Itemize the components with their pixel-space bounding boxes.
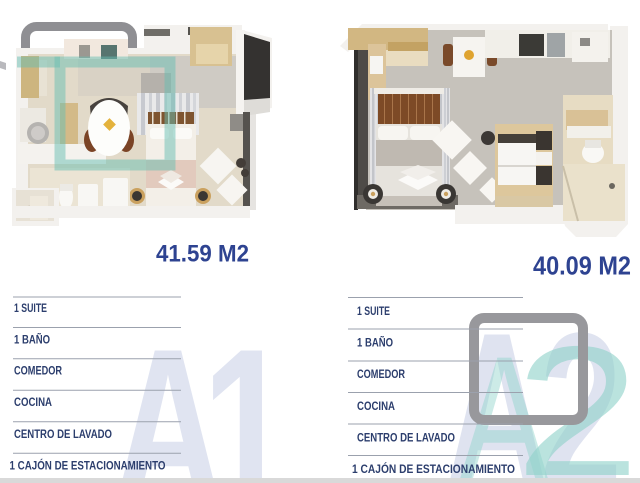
svg-text:1 SUITE: 1 SUITE <box>14 301 47 315</box>
svg-text:1 CAJÓN DE ESTACIONAMIENTO: 1 CAJÓN DE ESTACIONAMIENTO <box>10 458 166 473</box>
svg-text:COCINA: COCINA <box>14 395 52 409</box>
svg-text:1 BAÑO: 1 BAÑO <box>14 331 50 346</box>
svg-text:1 SUITE: 1 SUITE <box>357 304 390 318</box>
svg-text:CENTRO DE LAVADO: CENTRO DE LAVADO <box>357 430 455 444</box>
svg-text:1 CAJÓN DE ESTACIONAMIENTO: 1 CAJÓN DE ESTACIONAMIENTO <box>352 461 515 476</box>
svg-text:COMEDOR: COMEDOR <box>14 364 62 378</box>
svg-text:1: 1 <box>202 301 292 483</box>
svg-text:COCINA: COCINA <box>357 399 395 413</box>
svg-text:CENTRO DE LAVADO: CENTRO DE LAVADO <box>14 427 112 441</box>
svg-text:1 BAÑO: 1 BAÑO <box>357 335 393 350</box>
svg-text:COMEDOR: COMEDOR <box>357 367 405 381</box>
svg-text:41.59 M2: 41.59 M2 <box>156 241 249 268</box>
svg-text:40.09 M2: 40.09 M2 <box>533 253 631 281</box>
svg-text:2: 2 <box>515 309 640 483</box>
